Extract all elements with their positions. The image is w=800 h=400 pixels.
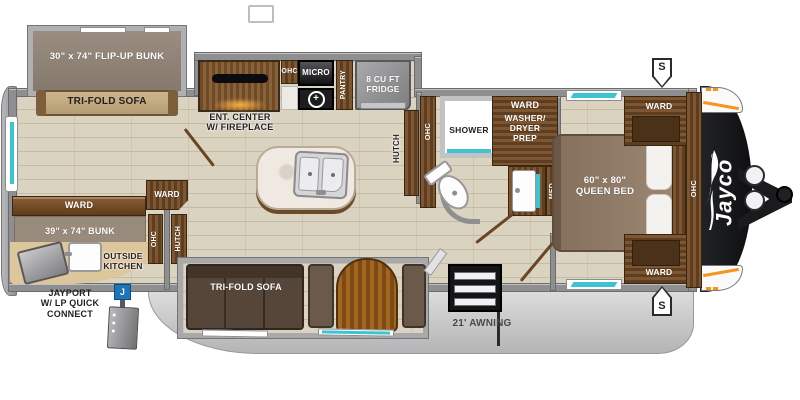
flip-up-bunk-label: 30" x 74" FLIP-UP BUNK: [34, 52, 180, 63]
jayport-griddle: [107, 306, 139, 350]
bedroom-ward-bottom-label: WARD: [630, 268, 688, 278]
sofa-armrest: [36, 90, 46, 116]
bath-ohc-label: OHC: [424, 123, 433, 140]
shower-label: SHOWER: [440, 126, 498, 136]
jayco-bird-icon: [702, 148, 720, 232]
washer-dryer-label: WASHER/ DRYER PREP: [492, 114, 558, 143]
marker-light-icon: [706, 88, 711, 91]
rear-sofa-label: TRI-FOLD SOFA: [56, 96, 158, 108]
rear-window-glass: [10, 122, 14, 184]
sink-drain: [331, 173, 335, 177]
bedroom-ohc-label-area: OHC: [686, 158, 702, 220]
cooktop-burner-icon: +: [308, 91, 325, 108]
entry-steps: [448, 264, 502, 312]
bedroom-window-bottom-glass: [571, 282, 618, 287]
speaker-letter: S: [652, 300, 672, 313]
hutch-label: HUTCH: [392, 134, 401, 163]
microwave: MICRO: [298, 60, 334, 86]
bath-ohc-label-area: OHC: [420, 104, 436, 160]
bedroom-ward-top-panel: [632, 116, 680, 142]
bunkroom-ohc: OHC: [148, 214, 163, 264]
jayport-connector: J: [114, 284, 131, 300]
floorplan-canvas: Jayco ® 30" x 74" FLIP-UP BUNK TRI-FOLD …: [0, 0, 800, 400]
main-sofa-label: TRI-FOLD SOFA: [196, 282, 296, 292]
bedroom-ward-top-label: WARD: [630, 102, 688, 112]
living-hutch-label: HUTCH: [175, 226, 183, 252]
speaker-letter: S: [652, 61, 672, 74]
hitch-jack-knob: [776, 186, 793, 203]
corner-ward: WARD: [146, 180, 188, 210]
griddle-knob: [112, 329, 115, 332]
roof-vent: [248, 5, 274, 23]
ent-center-label: ENT. CENTER W/ FIREPLACE: [188, 112, 292, 133]
kitchen-ohc: OHC: [281, 60, 298, 84]
jayport-label: JAYPORT W/ LP QUICK CONNECT: [26, 288, 114, 319]
bunkroom-ward-label: WARD: [12, 200, 146, 210]
exterior-speaker-icon: S: [652, 58, 672, 88]
bedroom-ward-bottom-panel: [632, 240, 680, 266]
marker-light-icon: [713, 287, 718, 290]
microwave-label: MICRO: [302, 68, 330, 77]
pantry-label: PANTRY: [340, 70, 348, 99]
outside-kitchen-label: OUTSIDE KITCHEN: [96, 252, 150, 272]
sofa-backrest: [188, 266, 302, 278]
island-faucet: [316, 190, 326, 195]
sink-drain: [308, 172, 312, 176]
fridge-base: [360, 102, 406, 109]
bedroom-ohc-label: OHC: [690, 180, 699, 197]
cooktop: +: [298, 88, 334, 110]
bunk-slideout-window: [80, 27, 126, 33]
vanity-accent: [536, 174, 540, 208]
living-hutch: HUTCH: [171, 214, 187, 264]
jayport-connector-label: J: [120, 287, 125, 297]
step-tread: [454, 298, 496, 306]
washer-ward-label: WARD: [492, 100, 558, 110]
griddle-knob: [113, 313, 116, 316]
dinette-table: [336, 258, 398, 332]
fireplace-glow: [212, 98, 268, 112]
marker-light-icon: [706, 287, 711, 290]
tv: [212, 74, 268, 83]
vanity-faucet: [515, 188, 520, 193]
kitchen-ohc-label: OHC: [281, 68, 297, 76]
kitchen-counter: [281, 86, 298, 110]
fridge-label: 8 CU FT FRIDGE: [366, 75, 400, 95]
step-tread: [454, 285, 496, 293]
marker-light-icon: [713, 88, 718, 91]
shower-threshold: [447, 149, 491, 153]
queen-bed-label: 60" x 80" QUEEN BED: [558, 176, 652, 198]
hutch-cabinet: [404, 110, 419, 196]
hutch-label-area: HUTCH: [390, 116, 404, 180]
corner-ward-label: WARD: [154, 190, 179, 199]
dinette-bench: [308, 264, 334, 328]
bunk-slideout-window: [144, 27, 170, 33]
bunk-bed-label: 39" x 74" BUNK: [20, 226, 140, 236]
awning-label: 21' AWNING: [442, 318, 522, 330]
pantry: PANTRY: [336, 60, 353, 110]
dinette-bench: [402, 264, 426, 328]
bedroom-window-top-glass: [571, 93, 618, 98]
sofa-armrest: [168, 90, 178, 116]
griddle-knob: [112, 321, 115, 324]
bunkroom-ohc-label: OHC: [151, 231, 159, 247]
slideout-window: [202, 329, 268, 337]
step-tread: [454, 272, 496, 280]
outside-kitchen-faucet: [64, 252, 72, 256]
